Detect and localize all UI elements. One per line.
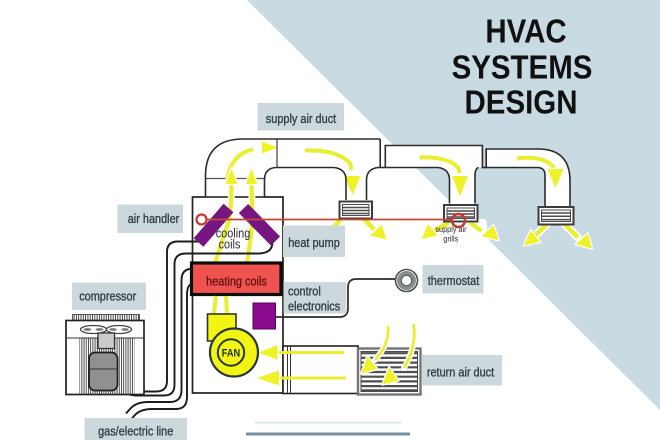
svg-text:return air duct: return air duct — [427, 365, 495, 380]
svg-text:supply air: supply air — [435, 224, 467, 234]
svg-text:coils: coils — [219, 237, 241, 252]
svg-text:heat pump: heat pump — [288, 235, 340, 250]
svg-text:air handler: air handler — [128, 211, 180, 226]
svg-text:gas/electric line: gas/electric line — [98, 424, 174, 439]
svg-text:HVAC: HVAC — [485, 12, 566, 50]
svg-text:control: control — [288, 284, 321, 299]
svg-text:DESIGN: DESIGN — [464, 83, 577, 121]
svg-text:electronics: electronics — [288, 299, 340, 314]
svg-text:thermostat: thermostat — [428, 273, 480, 288]
svg-text:SYSTEMS: SYSTEMS — [452, 48, 593, 86]
svg-text:heating coils: heating coils — [206, 274, 267, 289]
svg-text:compressor: compressor — [79, 289, 136, 304]
svg-text:supply air duct: supply air duct — [266, 111, 337, 126]
svg-text:grills: grills — [443, 234, 458, 244]
svg-text:FAN: FAN — [222, 348, 240, 360]
